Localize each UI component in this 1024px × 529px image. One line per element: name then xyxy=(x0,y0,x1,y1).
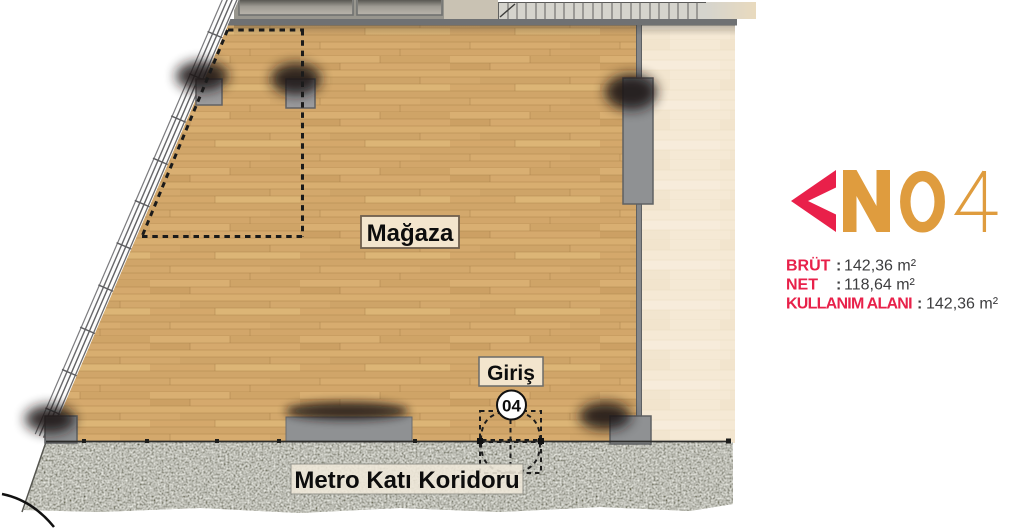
svg-text::: : xyxy=(917,296,922,313)
svg-text:118,64 m²: 118,64 m² xyxy=(844,277,916,294)
svg-text:142,36 m²: 142,36 m² xyxy=(844,258,917,275)
svg-text:KULLANIM ALANI: KULLANIM ALANI xyxy=(786,296,912,313)
svg-text::: : xyxy=(836,258,841,275)
svg-text:04: 04 xyxy=(502,397,521,416)
svg-text:Giriş: Giriş xyxy=(487,362,535,385)
svg-text:Metro Katı Koridoru: Metro Katı Koridoru xyxy=(294,467,519,494)
svg-text::: : xyxy=(836,277,841,294)
svg-text:NET: NET xyxy=(786,277,818,294)
svg-text:142,36 m²: 142,36 m² xyxy=(926,296,999,313)
svg-text:BRÜT: BRÜT xyxy=(786,256,831,275)
svg-text:Mağaza: Mağaza xyxy=(367,220,454,247)
